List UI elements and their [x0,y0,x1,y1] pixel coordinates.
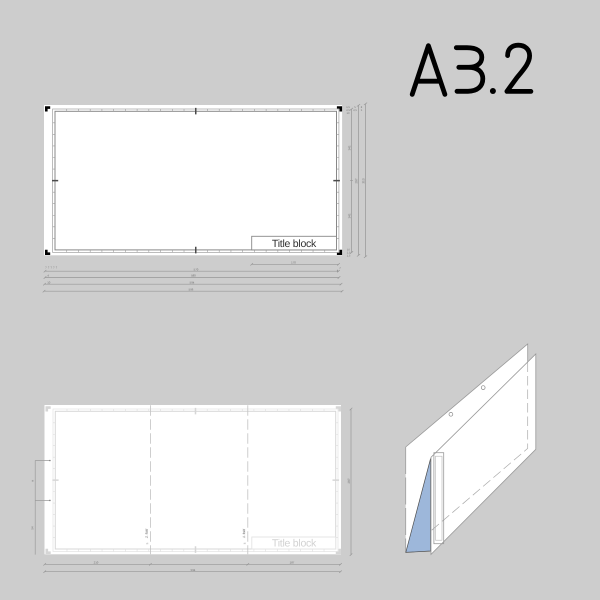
svg-text:1. fold: 1. fold [242,529,246,538]
svg-text:570: 570 [194,267,199,271]
svg-text:Title block: Title block [272,538,317,550]
svg-text:2,5: 2,5 [353,109,357,112]
svg-text:2. fold: 2. fold [145,529,149,539]
svg-text:580: 580 [191,274,196,278]
svg-text:297: 297 [347,478,351,483]
svg-text:170: 170 [291,260,296,264]
svg-text:10: 10 [47,280,51,284]
svg-text:313: 313 [361,178,365,183]
svg-text:297: 297 [354,178,358,183]
svg-text:594: 594 [190,280,195,284]
svg-text:141: 141 [347,213,351,218]
svg-text:1,5: 1,5 [347,254,351,257]
svg-text:54: 54 [30,526,34,530]
svg-text:596: 596 [189,287,194,291]
svg-text:594: 594 [191,568,196,572]
svg-text:210: 210 [94,560,99,564]
svg-text:Title block: Title block [272,238,317,250]
svg-text:187: 187 [290,561,295,565]
svg-text:141: 141 [347,145,351,150]
